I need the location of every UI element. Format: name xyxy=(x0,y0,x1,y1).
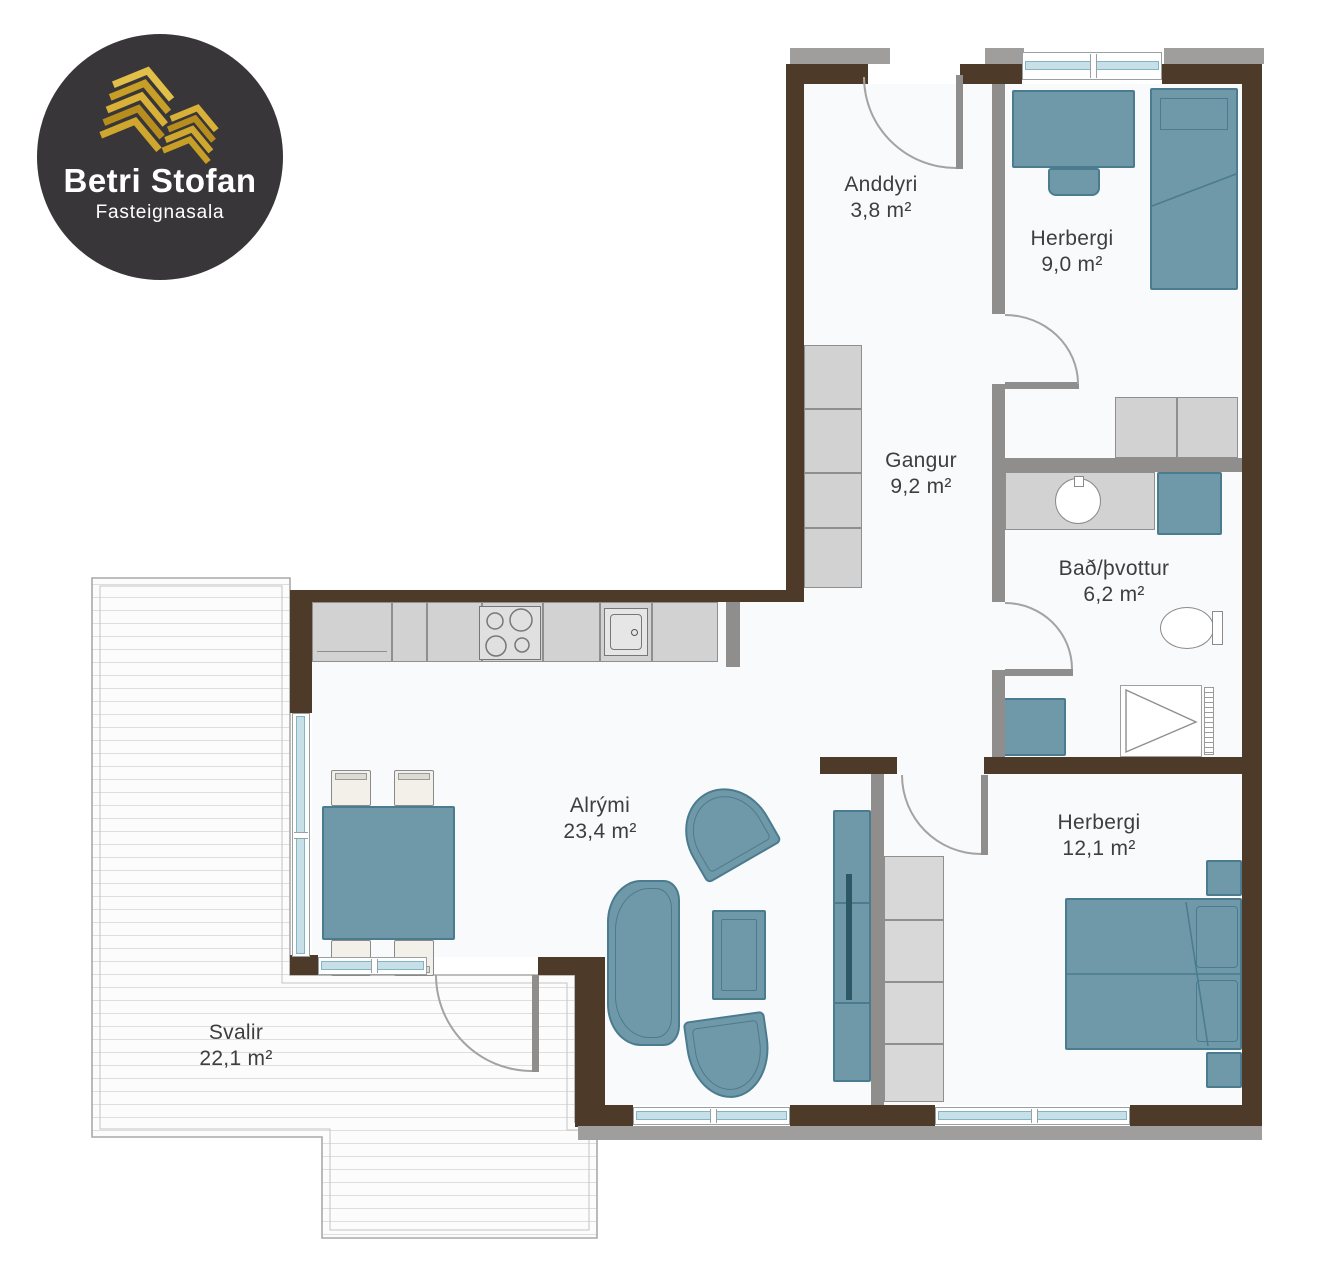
logo-buildings-icon xyxy=(80,60,240,164)
room-name: Gangur xyxy=(885,448,957,474)
logo-title: Betri Stofan xyxy=(63,162,256,200)
room-label-bad: Bað/þvottur 6,2 m² xyxy=(1059,556,1170,608)
floor-plan-page: Anddyri 3,8 m² Herbergi 9,0 m² Gangur 9,… xyxy=(0,0,1336,1280)
room-area: 22,1 m² xyxy=(199,1046,272,1072)
room-area: 6,2 m² xyxy=(1059,582,1170,608)
room-name: Bað/þvottur xyxy=(1059,556,1170,582)
room-area: 9,2 m² xyxy=(885,474,957,500)
room-area: 3,8 m² xyxy=(844,198,917,224)
room-name: Herbergi xyxy=(1031,226,1114,252)
room-name: Herbergi xyxy=(1058,810,1141,836)
room-label-gangur: Gangur 9,2 m² xyxy=(885,448,957,500)
room-label-svalir: Svalir 22,1 m² xyxy=(199,1020,272,1072)
agency-logo: Betri Stofan Fasteignasala xyxy=(37,34,283,280)
room-area: 23,4 m² xyxy=(563,819,636,845)
room-name: Alrými xyxy=(563,793,636,819)
room-area: 9,0 m² xyxy=(1031,252,1114,278)
room-label-herbergi-small: Herbergi 9,0 m² xyxy=(1031,226,1114,278)
room-area: 12,1 m² xyxy=(1058,836,1141,862)
room-label-herbergi-master: Herbergi 12,1 m² xyxy=(1058,810,1141,862)
room-label-anddyri: Anddyri 3,8 m² xyxy=(844,172,917,224)
room-label-alrymi: Alrými 23,4 m² xyxy=(563,793,636,845)
room-name: Anddyri xyxy=(844,172,917,198)
logo-subtitle: Fasteignasala xyxy=(96,202,225,224)
room-name: Svalir xyxy=(199,1020,272,1046)
